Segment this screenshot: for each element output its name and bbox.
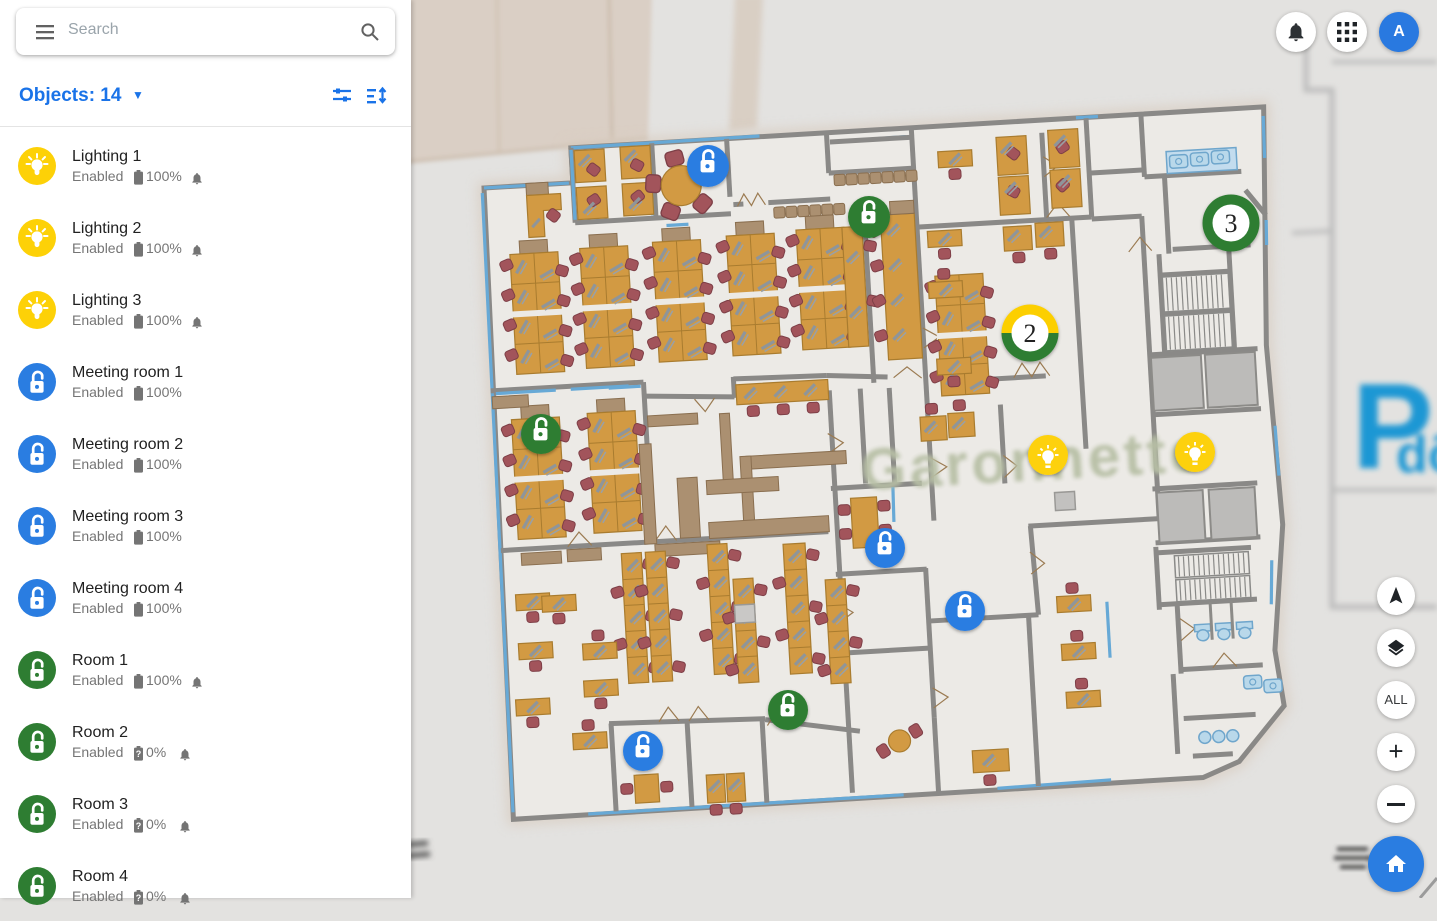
- svg-text:3: 3: [1225, 209, 1238, 238]
- svg-text:dõ: dõ: [1396, 426, 1437, 484]
- svg-text:?: ?: [136, 821, 142, 831]
- svg-text:2: 2: [1024, 319, 1037, 348]
- svg-text:?: ?: [136, 749, 142, 759]
- svg-text:?: ?: [136, 893, 142, 903]
